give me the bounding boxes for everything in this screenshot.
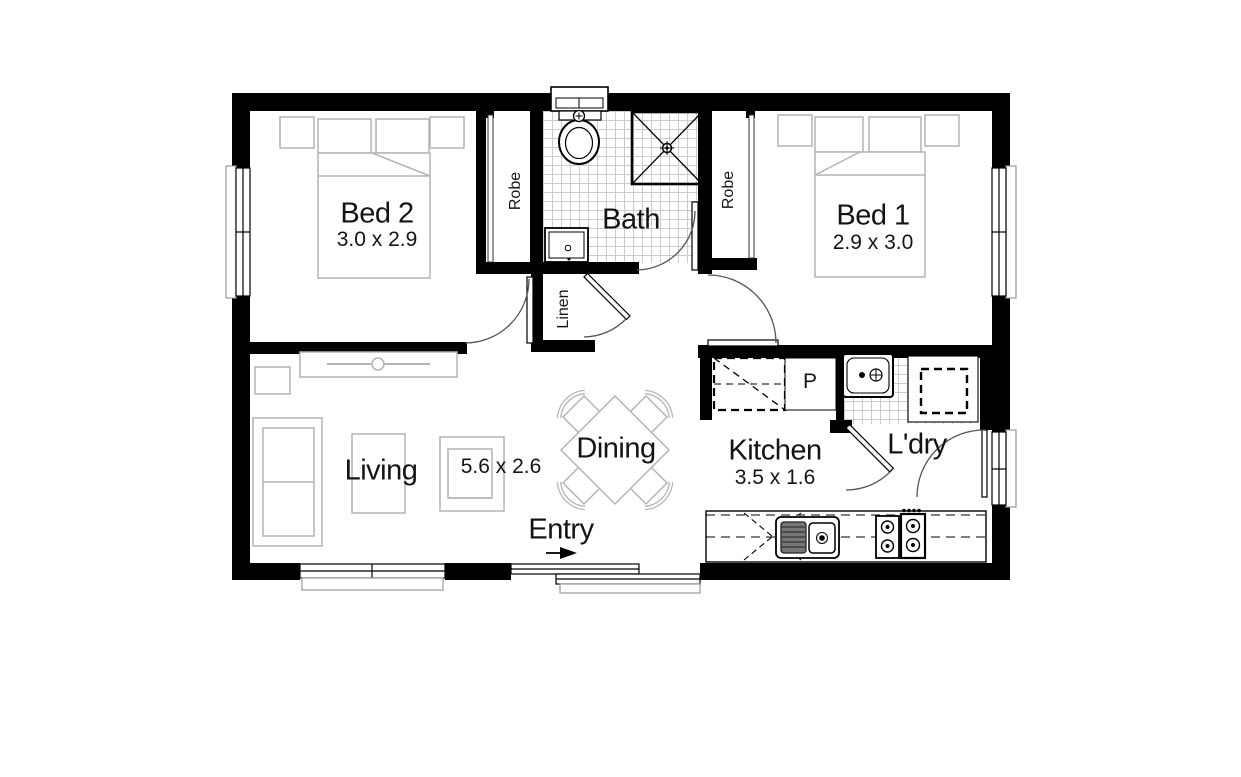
plan-linework <box>0 0 1241 777</box>
living-label: Living <box>345 455 418 488</box>
laundry-door-left-leaf <box>846 424 893 471</box>
linen-door-leaf <box>584 273 630 319</box>
pillow <box>318 119 371 153</box>
kitchen-label: Kitchen <box>728 435 821 468</box>
bed1-door-arc <box>708 275 776 343</box>
toilet <box>551 87 608 164</box>
floor-plan: Bed 2 3.0 x 2.9 Bed 1 2.9 x 3.0 Bath Liv… <box>0 0 1241 777</box>
robe-front-lines <box>488 115 754 262</box>
washing-machine-space <box>908 356 978 422</box>
entry-arrow-icon <box>546 547 577 559</box>
tv-swivel <box>372 358 384 370</box>
kitchen-dims: 3.5 x 1.6 <box>735 466 816 490</box>
vanity <box>545 228 588 262</box>
fridge-space <box>714 358 785 410</box>
side-table <box>255 367 290 394</box>
kitchen-bench <box>706 511 986 562</box>
living-furniture <box>253 352 504 546</box>
living-dims: 5.6 x 2.6 <box>461 455 542 479</box>
cooktop <box>876 509 925 558</box>
bed1-door-leaf <box>708 340 778 346</box>
window-bed1 <box>992 166 1016 298</box>
entry-sliding-door <box>511 564 700 593</box>
laundry-tub <box>843 354 893 397</box>
linen-label: Linen <box>555 289 573 328</box>
bed1-dims: 2.9 x 3.0 <box>833 231 914 255</box>
bedside-table <box>430 117 464 148</box>
bath-label: Bath <box>602 204 660 237</box>
dining-label: Dining <box>576 433 655 466</box>
entry-label: Entry <box>528 514 593 547</box>
kitchen-sink <box>776 517 839 558</box>
shower <box>632 112 702 184</box>
laundry-door-left-arc <box>846 472 890 490</box>
pantry-label: P <box>803 370 817 394</box>
bed2-door-arc <box>465 279 529 343</box>
robe-bed1-label: Robe <box>720 171 738 209</box>
bedside-table <box>280 117 314 148</box>
bedside-table <box>778 115 812 146</box>
window-bed2 <box>226 166 250 298</box>
laundry-door-right-leaf <box>982 430 987 497</box>
laundry-label: L'dry <box>887 429 946 462</box>
pillow <box>869 117 921 152</box>
robe-bed2-label: Robe <box>507 172 525 210</box>
bed2-label: Bed 2 <box>340 198 413 231</box>
bed1-label: Bed 1 <box>836 200 909 233</box>
pillow <box>815 117 863 152</box>
pillow <box>376 119 429 153</box>
window-living <box>300 564 445 590</box>
window-laundry <box>992 430 1016 507</box>
bedside-table <box>925 115 959 146</box>
linen-door-arc <box>584 319 626 337</box>
bed2-dims: 3.0 x 2.9 <box>337 228 418 252</box>
bed2-door-leaf <box>527 277 533 343</box>
